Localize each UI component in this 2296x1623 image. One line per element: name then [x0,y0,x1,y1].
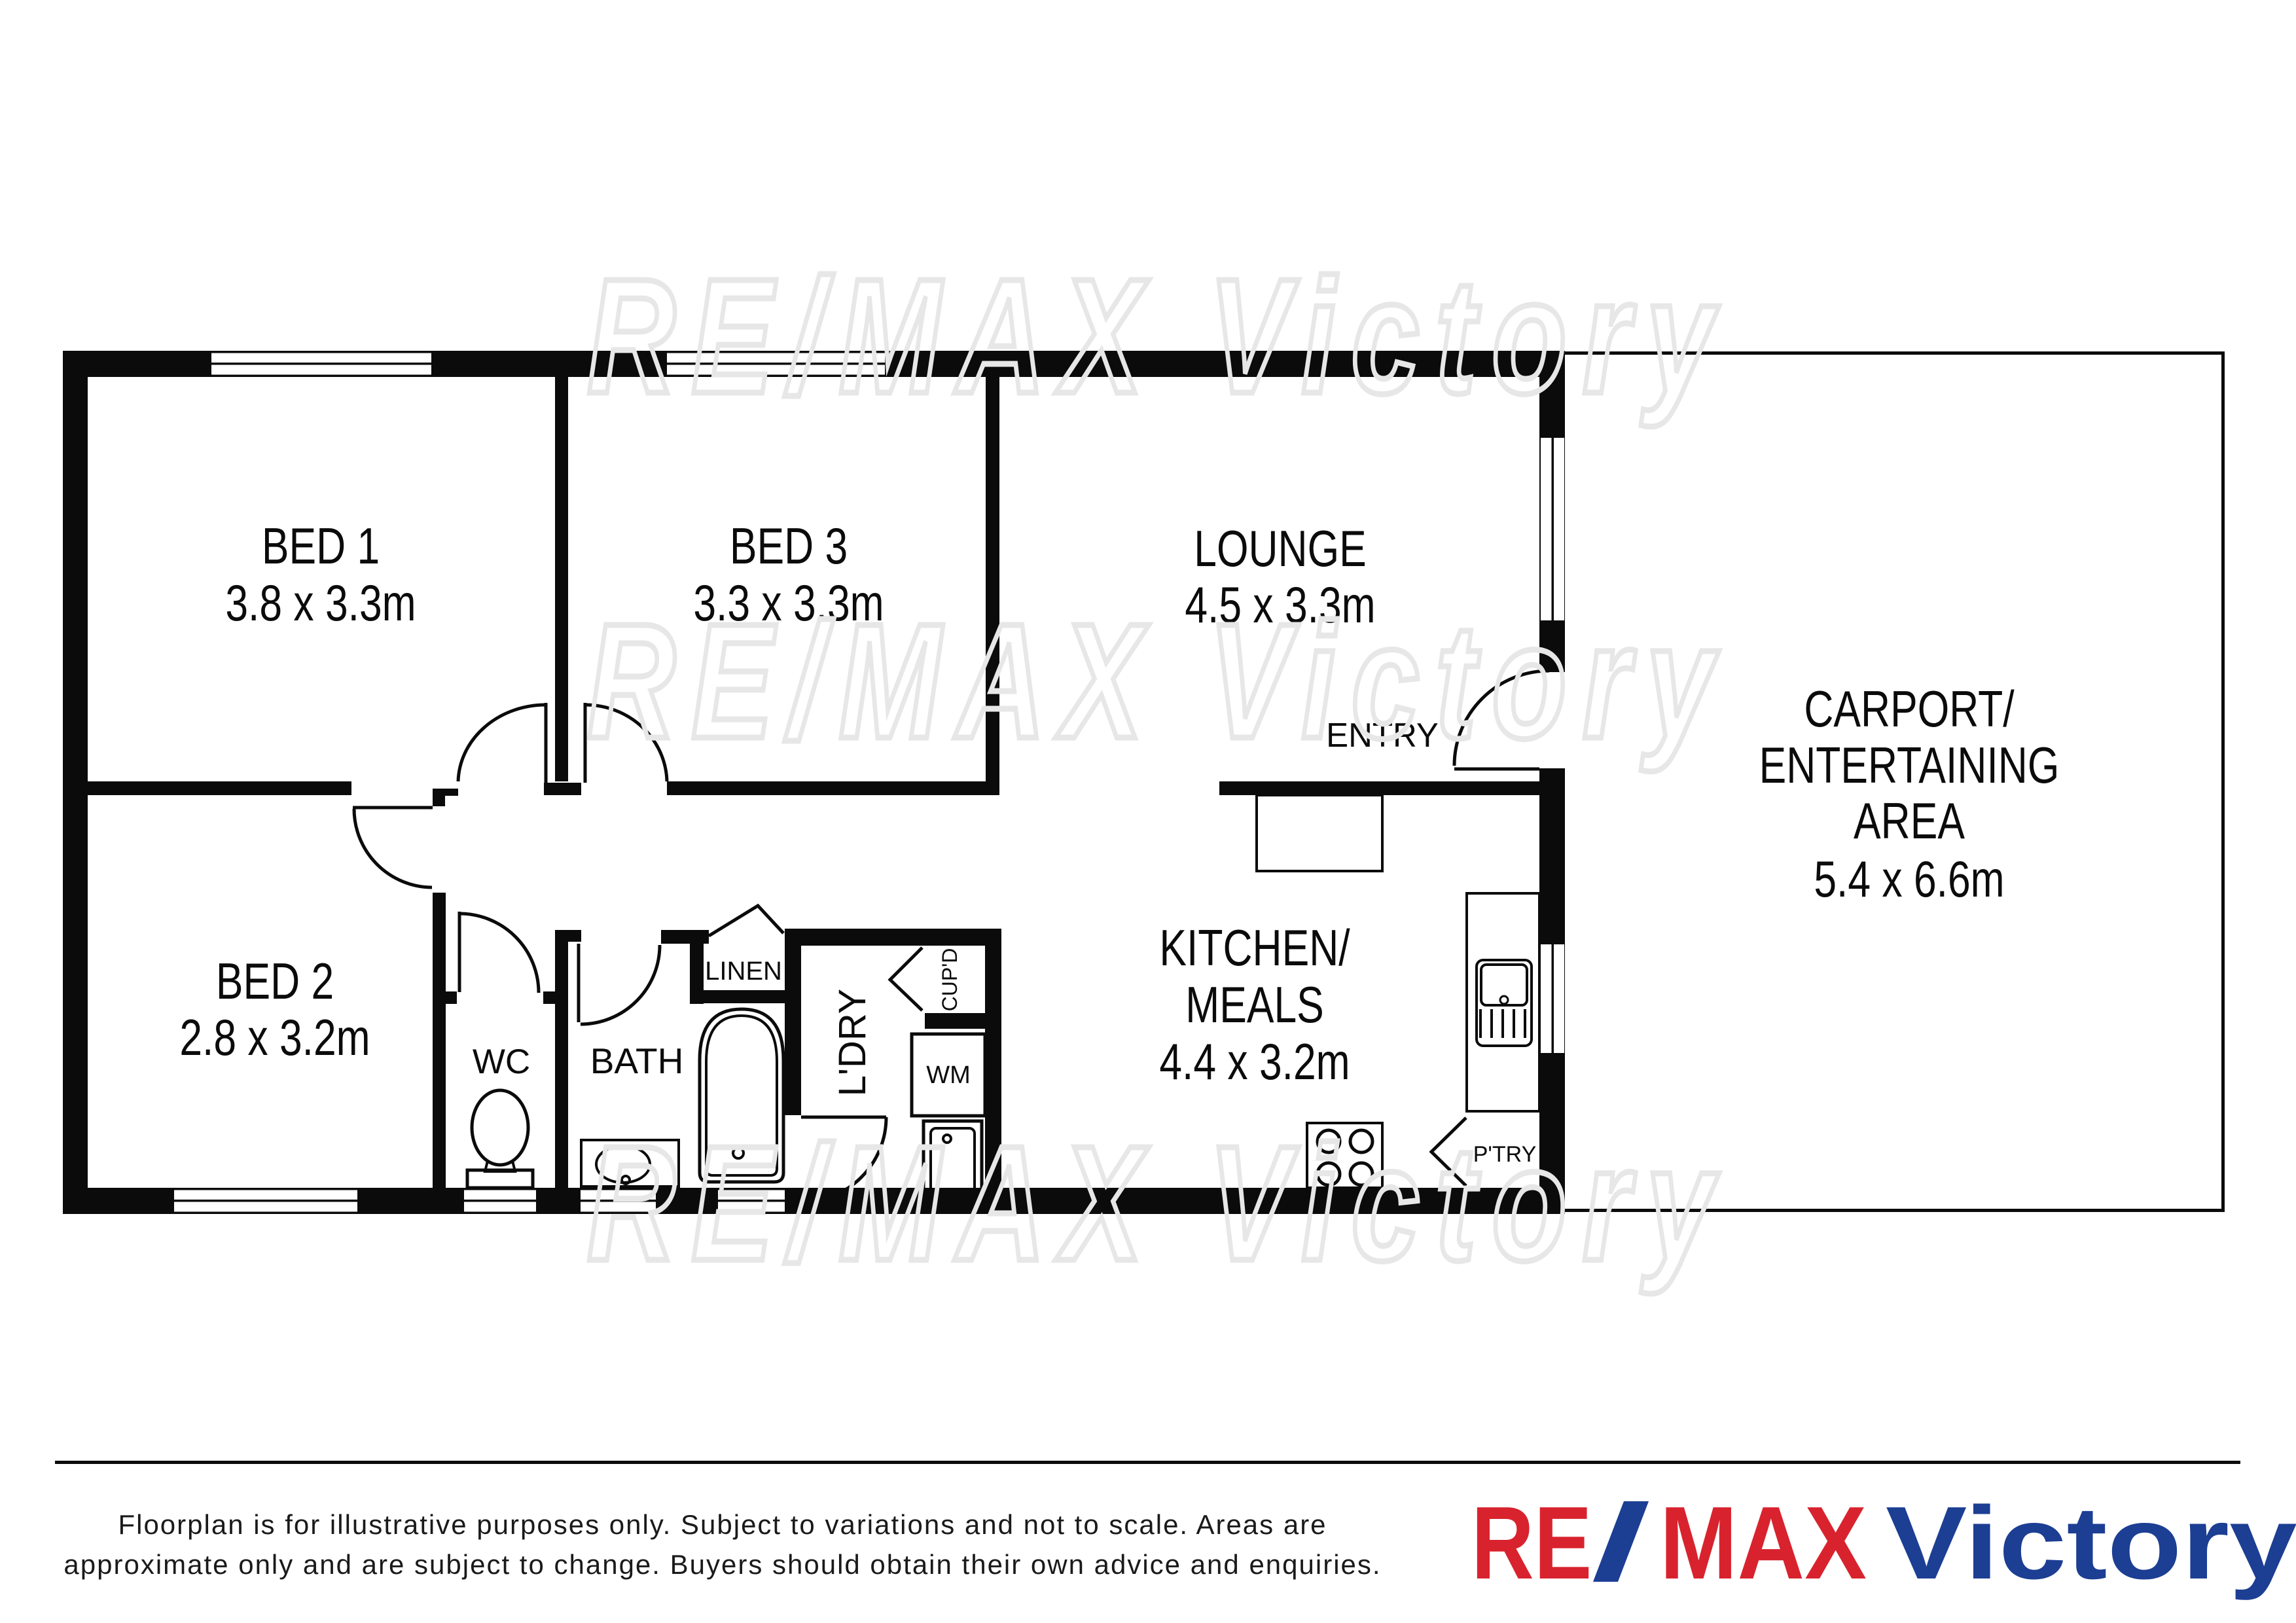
svg-text:LOUNGE: LOUNGE [1194,520,1367,577]
svg-text:L'DRY: L'DRY [831,989,874,1097]
svg-text:BATH: BATH [590,1041,684,1081]
svg-text:CARPORT/: CARPORT/ [1804,680,2015,737]
svg-text:Floorplan is for illustrative: Floorplan is for illustrative purposes o… [118,1509,1327,1540]
svg-text:4.4 x 3.2m: 4.4 x 3.2m [1159,1033,1350,1090]
svg-text:WM: WM [926,1061,971,1089]
svg-text:LINEN: LINEN [705,957,782,986]
svg-text:MEALS: MEALS [1185,976,1324,1033]
svg-text:CUP'D: CUP'D [938,948,961,1012]
svg-text:3.8 x 3.3m: 3.8 x 3.3m [225,574,416,631]
svg-text:BED 3: BED 3 [730,517,848,574]
svg-text:KITCHEN/: KITCHEN/ [1159,919,1350,976]
svg-text:ENTERTAINING: ENTERTAINING [1759,736,2060,793]
svg-text:2.8 x 3.2m: 2.8 x 3.2m [179,1008,370,1065]
svg-text:Victory: Victory [1886,1485,2296,1600]
svg-text:RE/MAX Victory: RE/MAX Victory [587,590,1730,772]
svg-text:5.4 x 6.6m: 5.4 x 6.6m [1814,850,2004,907]
svg-text:BED 1: BED 1 [262,517,380,574]
svg-text:RE: RE [1471,1485,1592,1601]
svg-text:RE/MAX Victory: RE/MAX Victory [587,1112,1730,1294]
svg-text:AREA: AREA [1854,792,1965,849]
svg-text:approximate only and are subje: approximate only and are subject to chan… [63,1549,1381,1580]
svg-text:WC: WC [473,1043,530,1081]
svg-text:RE/MAX Victory: RE/MAX Victory [587,245,1730,427]
svg-text:BED 2: BED 2 [216,952,334,1009]
svg-text:MAX: MAX [1660,1485,1867,1601]
